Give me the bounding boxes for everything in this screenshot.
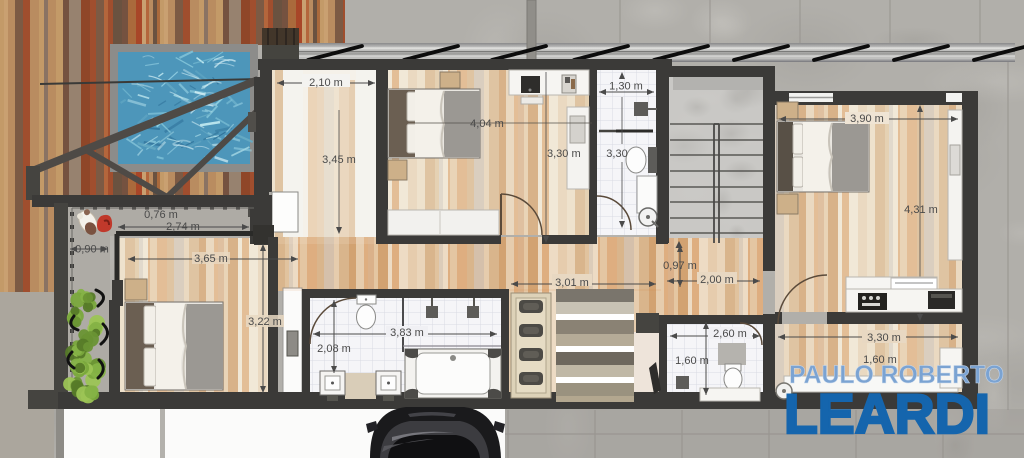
svg-text:2,10 m: 2,10 m	[309, 77, 343, 89]
svg-text:3,22 m: 3,22 m	[248, 316, 282, 328]
svg-text:1,60 m: 1,60 m	[675, 355, 709, 367]
svg-text:3,65 m: 3,65 m	[194, 253, 228, 265]
svg-text:1,30 m: 1,30 m	[609, 81, 643, 93]
svg-text:2,74 m: 2,74 m	[166, 221, 200, 233]
svg-text:3,83 m: 3,83 m	[390, 327, 424, 339]
svg-text:3,01 m: 3,01 m	[555, 277, 589, 289]
svg-text:3,30: 3,30	[606, 148, 627, 160]
svg-text:3,30 m: 3,30 m	[547, 148, 581, 160]
svg-text:2,08 m: 2,08 m	[317, 343, 351, 355]
svg-text:0,76 m: 0,76 m	[144, 209, 178, 221]
svg-text:2,60 m: 2,60 m	[713, 328, 747, 340]
svg-text:3,90 m: 3,90 m	[850, 113, 884, 125]
svg-text:0,97 m: 0,97 m	[663, 260, 697, 272]
svg-text:2,00 m: 2,00 m	[700, 274, 734, 286]
svg-text:3,45 m: 3,45 m	[322, 154, 356, 166]
svg-text:4,31 m: 4,31 m	[904, 204, 938, 216]
svg-text:4,04 m: 4,04 m	[470, 118, 504, 130]
svg-text:LEARDI: LEARDI	[784, 382, 990, 445]
svg-text:0,90 m: 0,90 m	[75, 244, 109, 256]
svg-text:3,30 m: 3,30 m	[867, 332, 901, 344]
